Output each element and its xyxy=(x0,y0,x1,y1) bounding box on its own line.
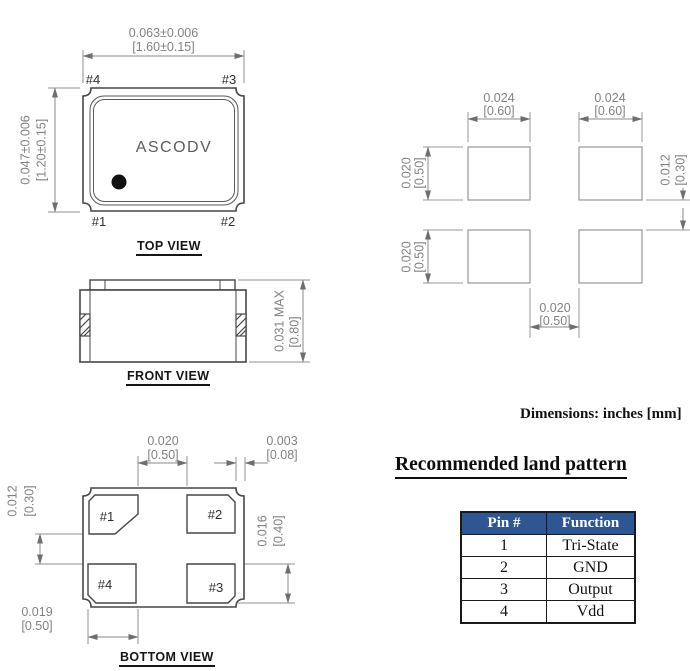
front-height-dim-inches: 0.031 MAX xyxy=(272,289,286,352)
bottom-pad-width-inches: 0.019 xyxy=(21,605,52,619)
pin-number-header: Pin # xyxy=(461,512,547,535)
pin1-marker-dot xyxy=(112,175,127,190)
land-gap-y-inches: 0.012 xyxy=(658,154,672,185)
top-height-dim-mm: [1.20±0.15] xyxy=(34,119,48,181)
bottom-pad-height-mm: [0.40] xyxy=(271,515,285,546)
bottom-pad-height-inches: 0.016 xyxy=(255,515,269,546)
front-view-body xyxy=(80,290,246,362)
top-view-drawing: 0.063±0.006 [1.60±0.15] 0.047±0.006 [1.2… xyxy=(18,26,244,229)
bottom-edge-offset-mm: [0.08] xyxy=(266,448,297,462)
top-height-dim-inches: 0.047±0.006 xyxy=(18,115,32,184)
top-pin2-label: #2 xyxy=(221,214,235,229)
pin-function-cell: GND xyxy=(547,557,636,579)
right-terminal-hatch xyxy=(236,314,246,336)
bottom-pad1-label: #1 xyxy=(100,509,114,524)
top-pin4-label: #4 xyxy=(86,72,100,87)
bottom-edge-offset-inches: 0.003 xyxy=(266,434,297,448)
land-pad-width-left-inches: 0.024 xyxy=(483,91,514,105)
pin-function-cell: Output xyxy=(547,579,636,601)
land-pad-top-right xyxy=(579,147,642,200)
bottom-pad-gap-y-mm: [0.30] xyxy=(22,485,36,516)
top-pin1-label: #1 xyxy=(92,214,106,229)
land-pad-height-top-mm: [0.50] xyxy=(412,157,426,188)
bottom-pad-gap-x-mm: [0.50] xyxy=(147,448,178,462)
top-width-dim-mm: [1.60±0.15] xyxy=(132,40,194,54)
table-row: 4 Vdd xyxy=(461,601,635,624)
top-width-dim-inches: 0.063±0.006 xyxy=(129,26,198,40)
pin-function-cell: Vdd xyxy=(547,601,636,624)
land-pad-bottom-left xyxy=(468,230,530,283)
units-note: Dimensions: inches [mm] xyxy=(520,406,682,423)
land-gap-x-mm: [0.50] xyxy=(539,314,570,328)
pin-number-cell: 4 xyxy=(461,601,547,624)
bottom-pad4-label: #4 xyxy=(98,577,112,592)
pin-number-cell: 3 xyxy=(461,579,547,601)
bottom-view-drawing: #1 #2 #4 #3 0.020 [0.50] 0.003 [0.08] 0.… xyxy=(5,434,297,644)
land-pad-height-top-inches: 0.020 xyxy=(399,157,413,188)
table-row: 1 Tri-State xyxy=(461,535,635,557)
left-terminal-hatch xyxy=(80,314,90,336)
bottom-pad-gap-y-inches: 0.012 xyxy=(5,485,19,516)
front-view-title: FRONT VIEW xyxy=(126,369,210,386)
table-row: 2 GND xyxy=(461,557,635,579)
bottom-view-title: BOTTOM VIEW xyxy=(119,650,215,667)
land-pad-height-bottom-inches: 0.020 xyxy=(399,241,413,272)
land-gap-x-inches: 0.020 xyxy=(539,301,570,315)
land-pad-top-left xyxy=(468,147,530,200)
pin-number-cell: 2 xyxy=(461,557,547,579)
bottom-pad-gap-x-inches: 0.020 xyxy=(147,434,178,448)
bottom-pad2-label: #2 xyxy=(208,507,222,522)
land-pad-width-right-inches: 0.024 xyxy=(594,91,625,105)
bottom-pad-width-mm: [0.50] xyxy=(21,619,52,633)
front-view-drawing: 0.031 MAX [0.80] xyxy=(80,280,310,362)
function-header: Function xyxy=(547,512,636,535)
pin-function-cell: Tri-State xyxy=(547,535,636,557)
land-pad-width-left-mm: [0.60] xyxy=(483,104,514,118)
front-height-dim-mm: [0.80] xyxy=(287,316,301,347)
top-pin3-label: #3 xyxy=(222,72,236,87)
bottom-pad3-label: #3 xyxy=(209,580,223,595)
land-pattern-drawing: 0.024 [0.60] 0.024 [0.60] 0.020 [0.50] 0… xyxy=(399,91,690,338)
pin-number-cell: 1 xyxy=(461,535,547,557)
land-gap-y-mm: [0.30] xyxy=(673,154,687,185)
land-pad-width-right-mm: [0.60] xyxy=(594,104,625,118)
land-pad-height-bottom-mm: [0.50] xyxy=(412,241,426,272)
datasheet-drawing-page: { "page": { "note": "Dimensions: inches … xyxy=(0,0,690,671)
land-pattern-heading: Recommended land pattern xyxy=(395,454,627,479)
table-row: 3 Output xyxy=(461,579,635,601)
land-pad-bottom-right xyxy=(579,230,642,283)
pin-function-table: Pin # Function 1 Tri-State 2 GND 3 Outpu… xyxy=(460,511,636,624)
table-header-row: Pin # Function xyxy=(461,512,635,535)
top-view-title: TOP VIEW xyxy=(136,239,202,256)
part-marking-text: ASCODV xyxy=(136,139,213,156)
